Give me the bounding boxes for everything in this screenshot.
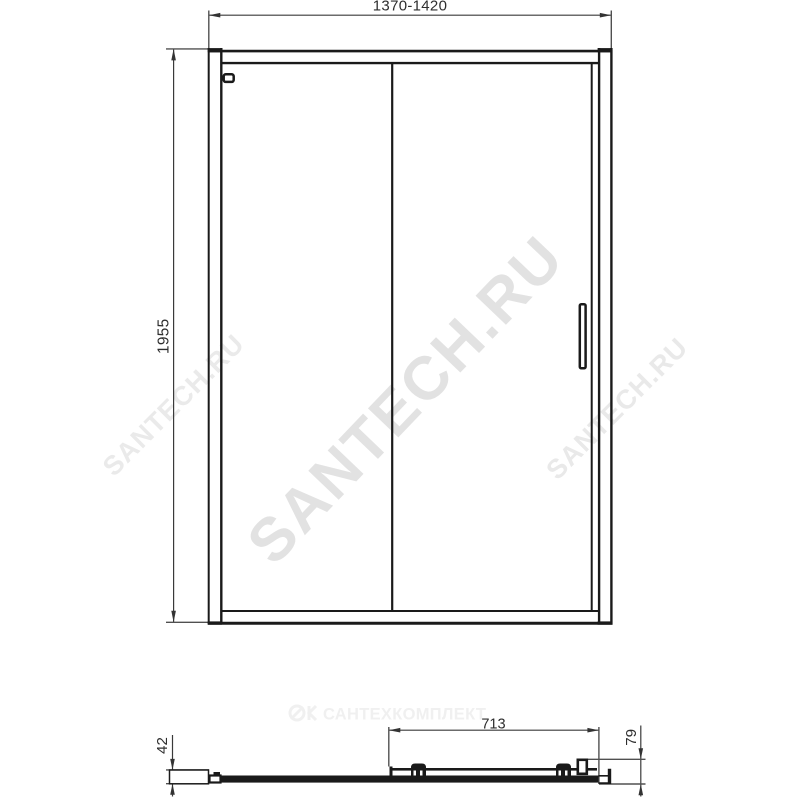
svg-text:1370-1420: 1370-1420	[373, 0, 447, 14]
svg-text:САНТЕХКОМПЛЕКТ: САНТЕХКОМПЛЕКТ	[323, 706, 486, 724]
svg-text:42: 42	[154, 737, 171, 754]
svg-text:79: 79	[623, 729, 640, 746]
svg-text:1955: 1955	[155, 318, 172, 353]
